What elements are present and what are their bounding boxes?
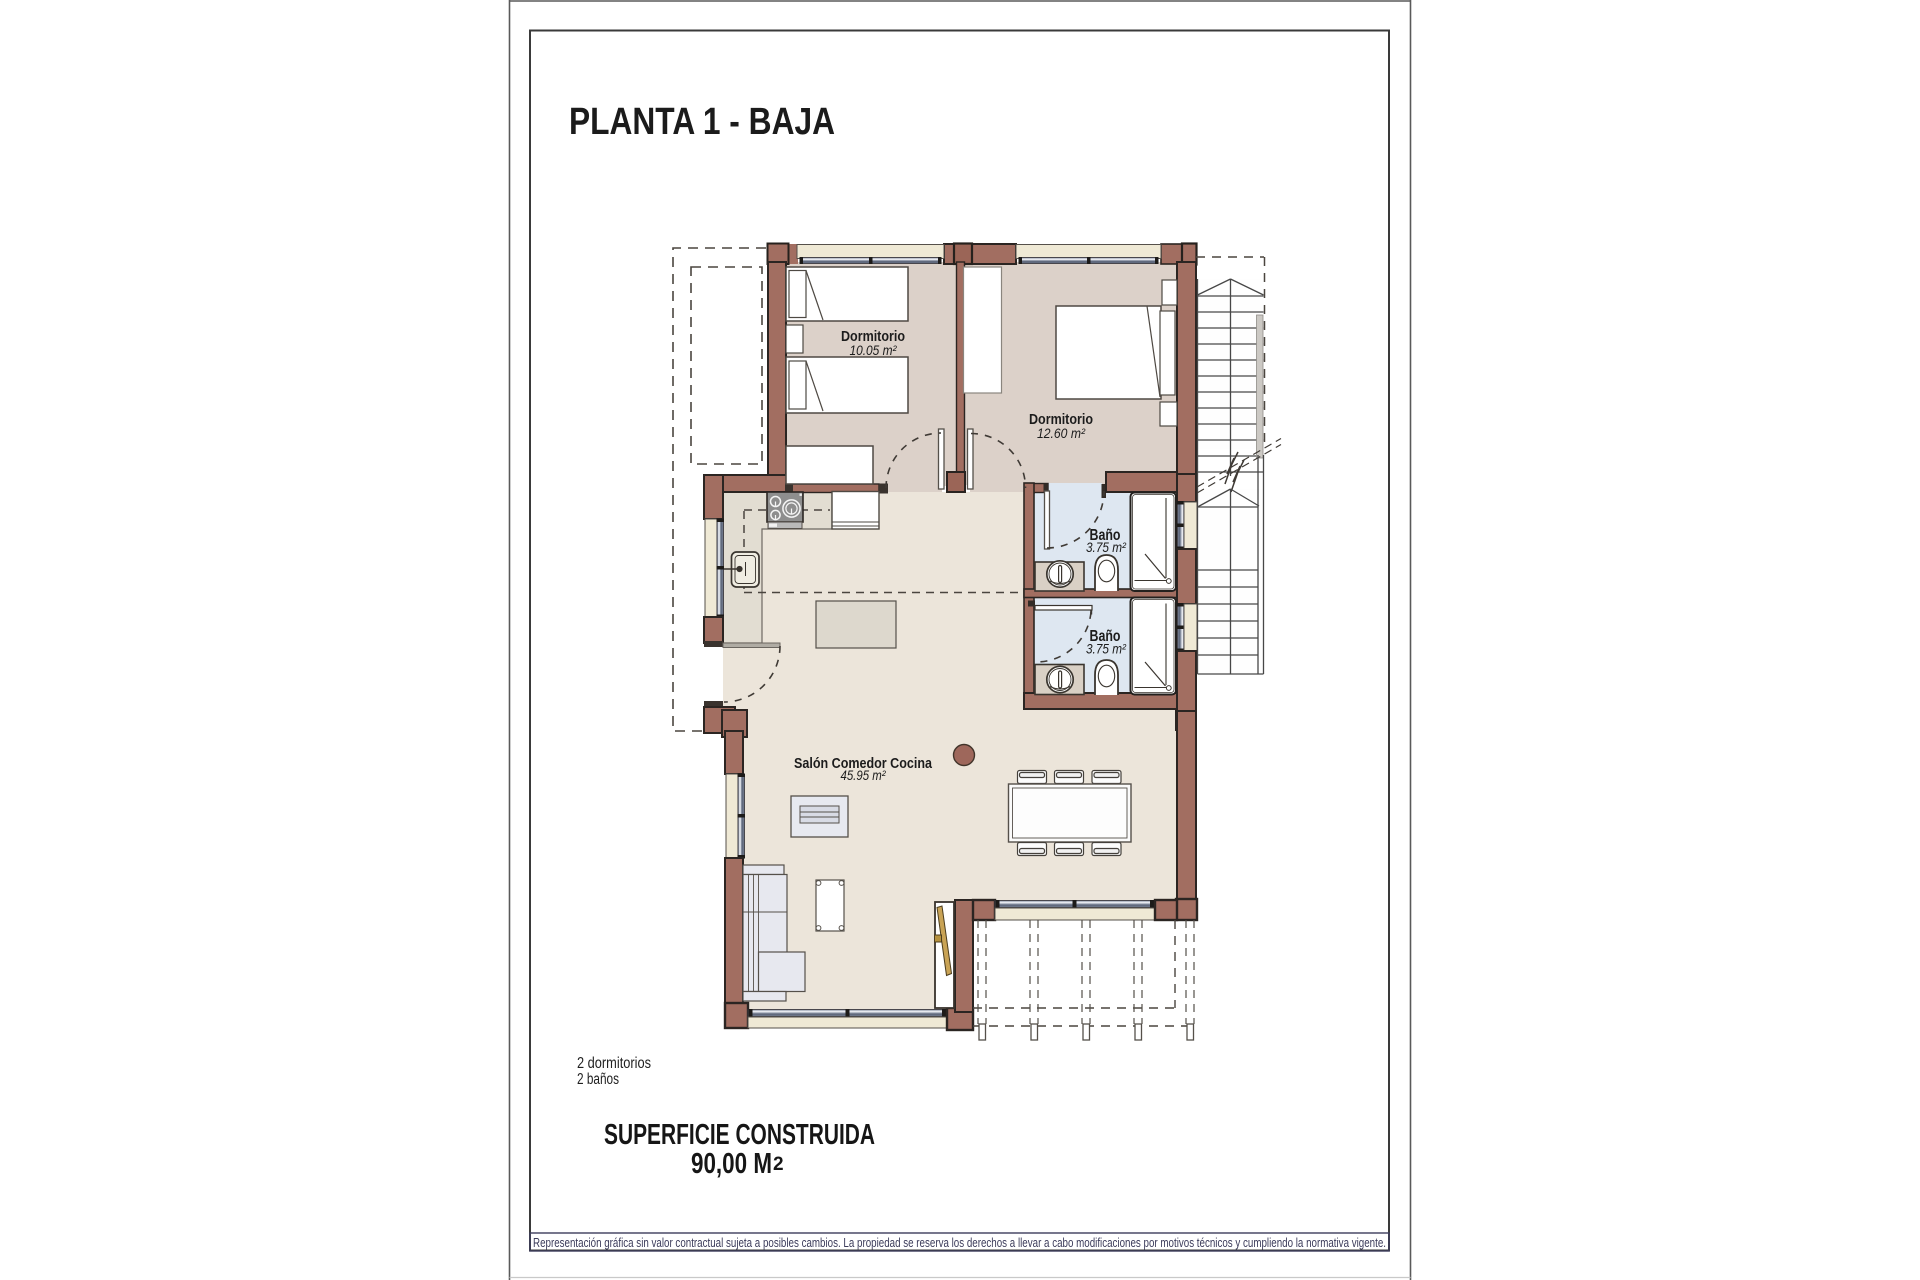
svg-text:SUPERFICIE CONSTRUIDA: SUPERFICIE CONSTRUIDA	[604, 1119, 875, 1151]
svg-text:2: 2	[773, 1154, 784, 1175]
svg-text:PLANTA 1 - BAJA: PLANTA 1 - BAJA	[569, 101, 835, 143]
svg-text:12.60 m²: 12.60 m²	[1037, 426, 1085, 441]
svg-text:2 baños: 2 baños	[577, 1071, 619, 1088]
svg-text:Representación gráfica sin val: Representación gráfica sin valor contrac…	[533, 1235, 1386, 1250]
svg-text:45.95 m²: 45.95 m²	[841, 768, 886, 783]
svg-text:2 dormitorios: 2 dormitorios	[577, 1055, 651, 1072]
svg-text:10.05 m²: 10.05 m²	[850, 343, 897, 358]
svg-text:3.75 m²: 3.75 m²	[1086, 540, 1126, 555]
svg-text:90,00 M: 90,00 M	[691, 1148, 772, 1180]
svg-text:3.75 m²: 3.75 m²	[1086, 642, 1126, 657]
